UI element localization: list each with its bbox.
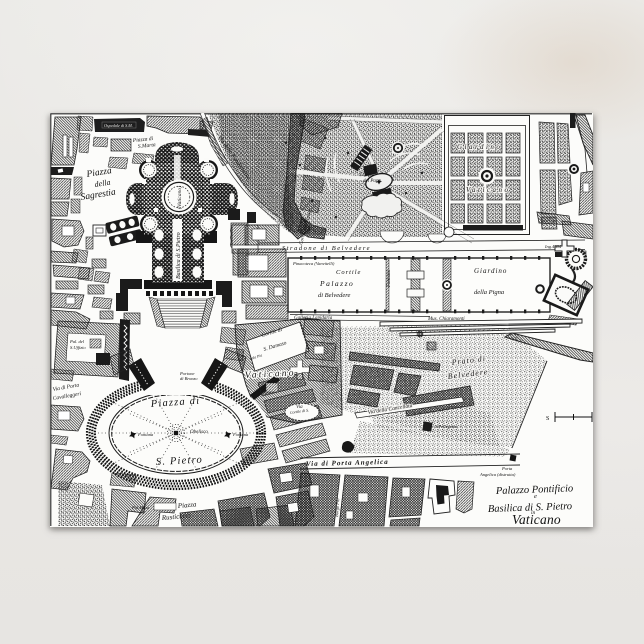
svg-text:Giardino: Giardino [457, 143, 502, 151]
svg-text:Porta: Porta [501, 466, 513, 471]
svg-text:Stradone di Belvedere: Stradone di Belvedere [282, 245, 371, 252]
svg-text:Fontana: Fontana [137, 432, 154, 437]
svg-text:S: S [546, 416, 549, 422]
svg-text:di Belvedere: di Belvedere [318, 292, 351, 299]
svg-text:Palazzo: Palazzo [319, 279, 354, 288]
svg-text:Vaticano: Vaticano [512, 512, 561, 527]
svg-text:Ospedale di S.M.: Ospedale di S.M. [104, 123, 133, 128]
svg-text:S.Pellegrino: S.Pellegrino [435, 424, 458, 429]
svg-text:Cortile: Cortile [336, 269, 361, 276]
svg-text:Angelica (distrutta): Angelica (distrutta) [479, 472, 516, 477]
svg-text:Galleria Lapidaria: Galleria Lapidaria [294, 316, 333, 321]
svg-text:Fontana: Fontana [232, 432, 249, 437]
svg-text:e: e [534, 493, 537, 500]
svg-text:del Papa: del Papa [363, 179, 381, 184]
svg-text:Fontana: Fontana [387, 270, 392, 288]
svg-text:Ing.4684: Ing.4684 [544, 244, 562, 249]
svg-text:Casino: Casino [360, 173, 375, 178]
svg-text:della Pigna: della Pigna [474, 289, 504, 296]
svg-text:Pal.Mazz: Pal.Mazz [131, 505, 149, 510]
svg-text:Mus. Chiaramonti: Mus. Chiaramonti [427, 317, 465, 322]
svg-text:S.Uffizio: S.Uffizio [70, 345, 86, 350]
svg-text:Basilica di S.Pietro: Basilica di S.Pietro [176, 232, 182, 279]
svg-text:Giardino: Giardino [474, 267, 507, 275]
svg-text:Obelisco: Obelisco [190, 430, 208, 435]
svg-text:di Bronzo: di Bronzo [180, 376, 198, 381]
svg-text:Pinacoteca (Vanvitelli): Pinacoteca (Vanvitelli) [292, 261, 335, 266]
svg-text:(Vaticano): (Vaticano) [176, 186, 183, 209]
svg-text:Vaticano: Vaticano [466, 186, 511, 194]
svg-text:Pal. del: Pal. del [69, 339, 85, 344]
svg-text:Via: Via [296, 405, 303, 410]
